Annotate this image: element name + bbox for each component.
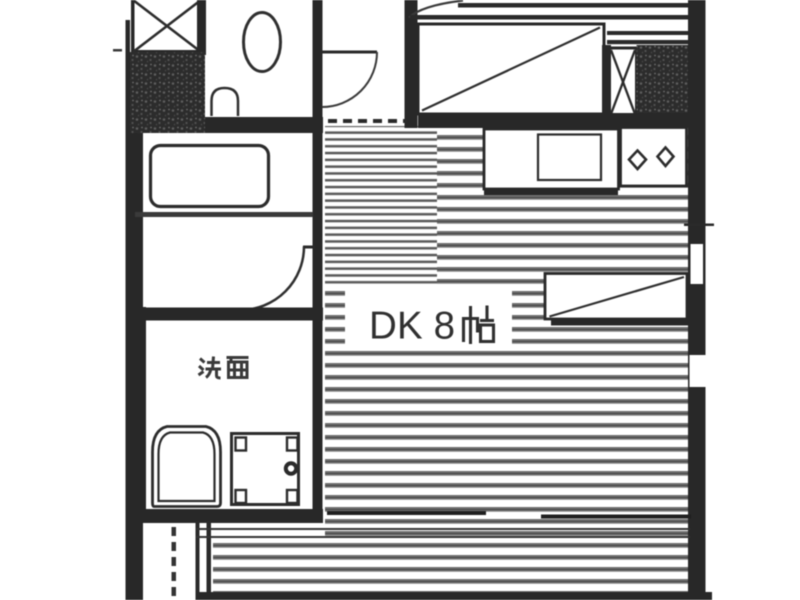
svg-text:DK 8: DK 8	[369, 305, 455, 348]
